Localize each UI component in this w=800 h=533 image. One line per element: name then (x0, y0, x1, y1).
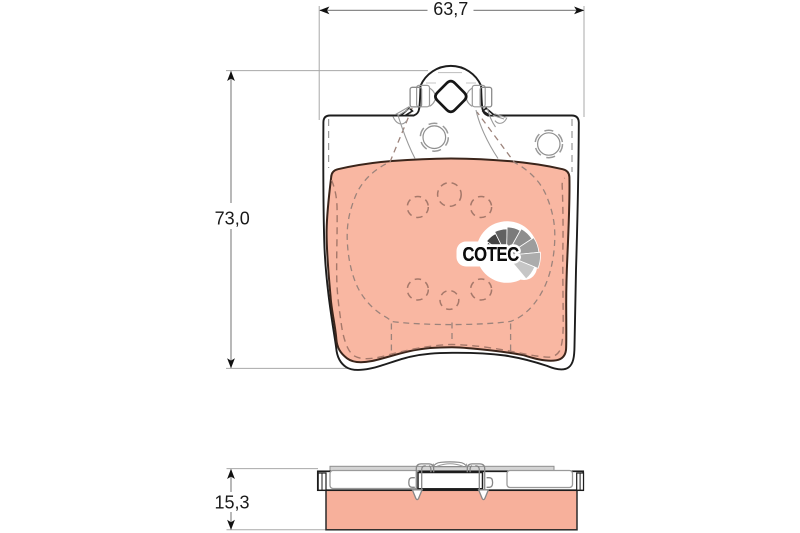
svg-text:63,7: 63,7 (433, 0, 468, 19)
svg-text:15,3: 15,3 (214, 493, 249, 513)
svg-text:COTEC: COTEC (463, 242, 519, 265)
svg-text:73,0: 73,0 (215, 208, 250, 228)
